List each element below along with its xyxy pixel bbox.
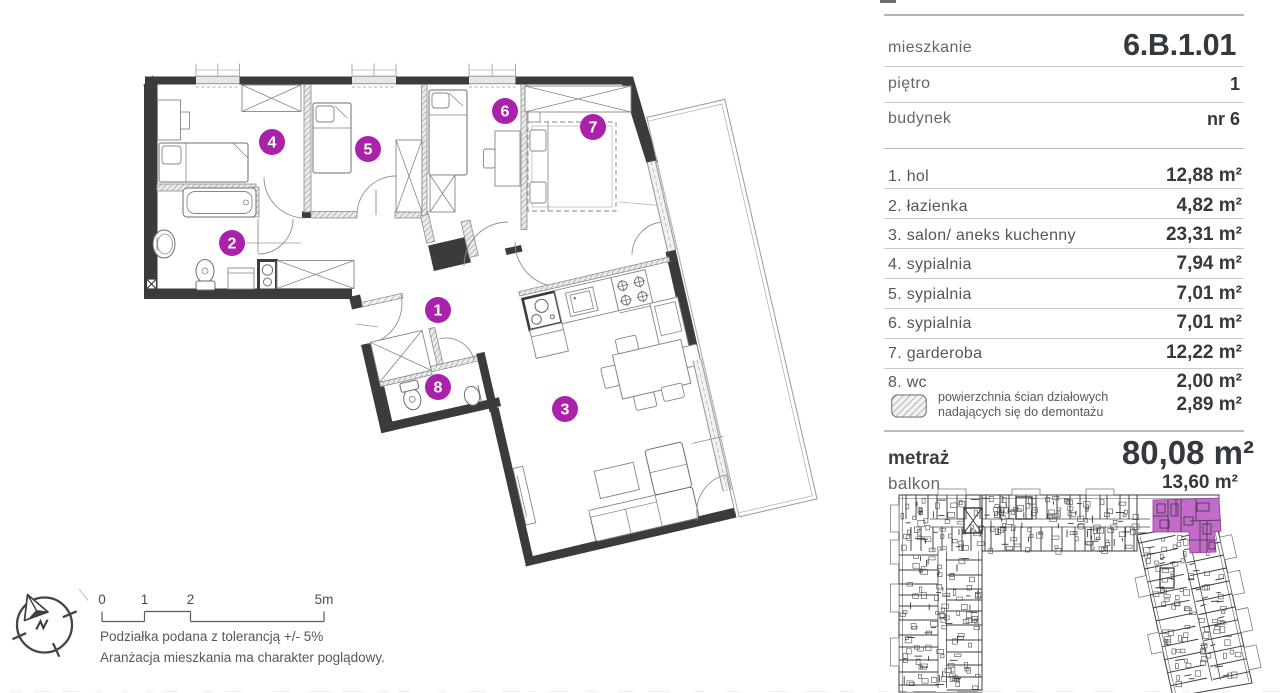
svg-text:2: 2	[228, 236, 237, 253]
svg-text:0: 0	[98, 592, 106, 607]
svg-text:1: 1	[141, 592, 149, 607]
svg-text:2: 2	[187, 592, 195, 607]
svg-text:7: 7	[589, 120, 598, 137]
svg-text:3: 3	[561, 402, 570, 419]
svg-text:4: 4	[268, 135, 277, 152]
svg-text:5m: 5m	[315, 592, 334, 607]
svg-text:6: 6	[501, 104, 510, 121]
svg-text:8: 8	[434, 380, 443, 397]
svg-text:5: 5	[364, 142, 373, 159]
svg-text:1: 1	[434, 303, 443, 320]
